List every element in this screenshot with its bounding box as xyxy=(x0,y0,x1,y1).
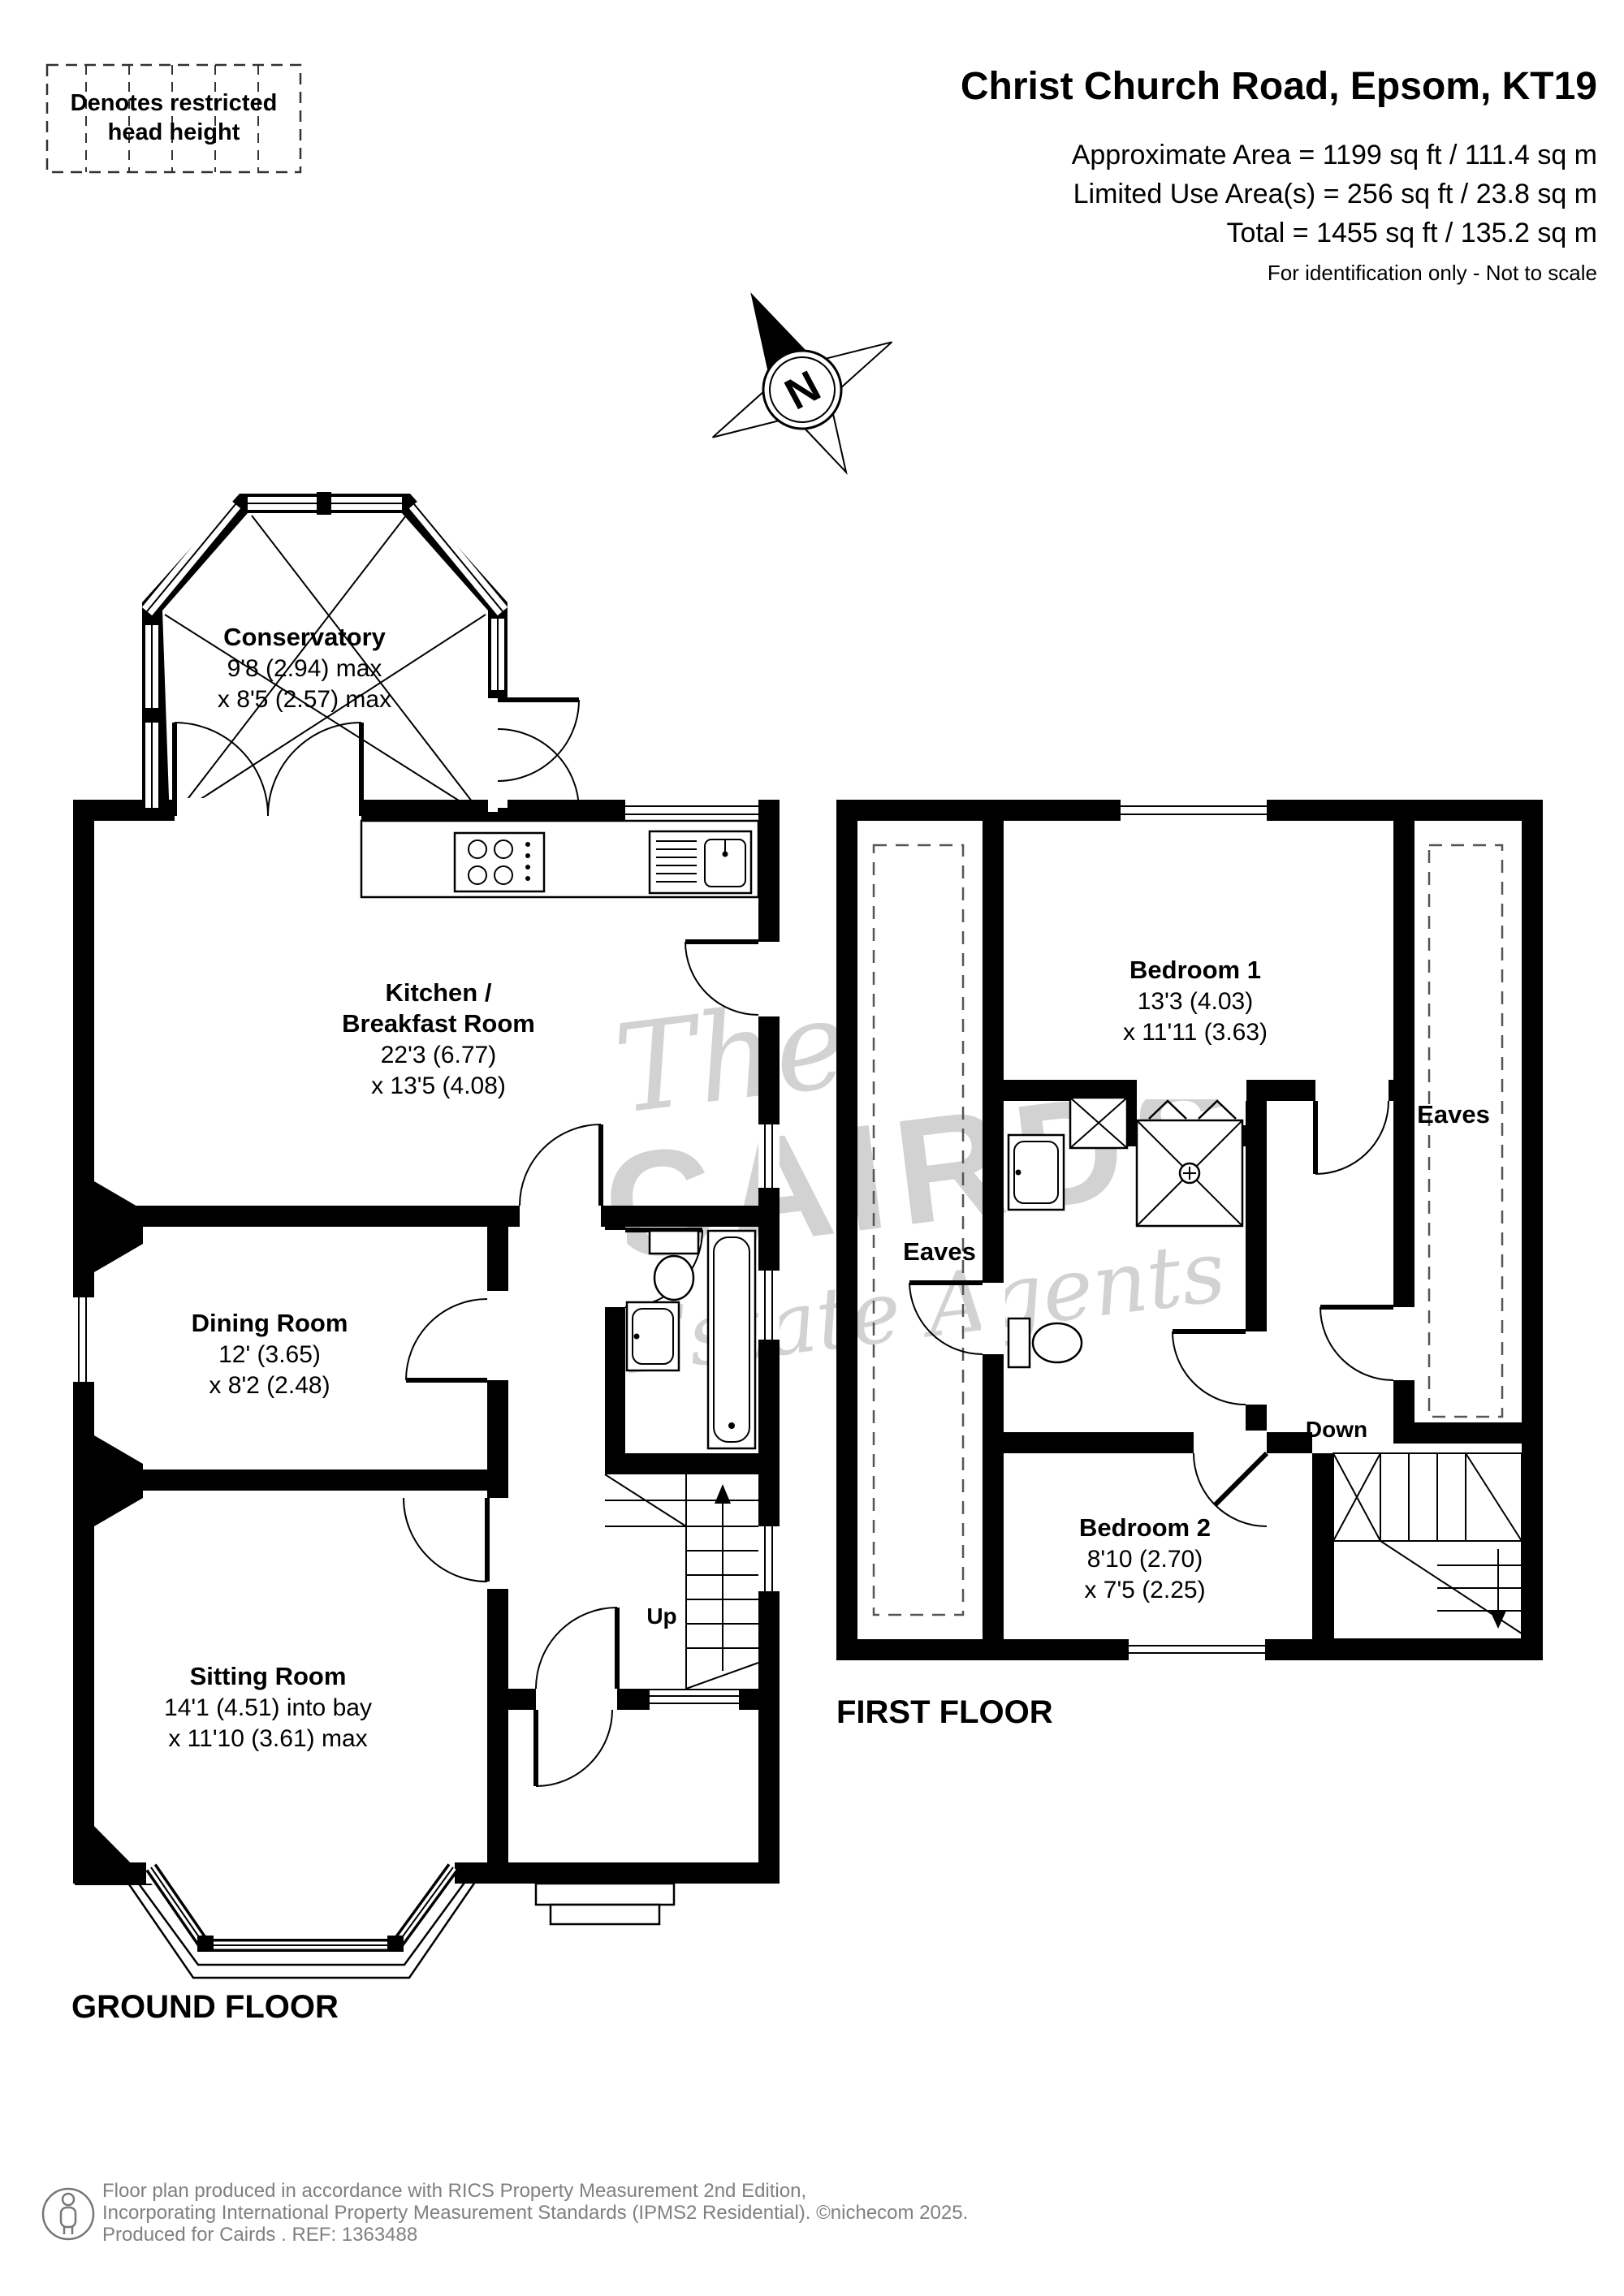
toilet-icon xyxy=(1009,1318,1082,1367)
footer: Floor plan produced in accordance with R… xyxy=(43,2180,968,2246)
person-icon xyxy=(43,2189,93,2239)
sink-icon xyxy=(650,831,751,893)
room-dim2: x 11'10 (3.61) max xyxy=(168,1725,367,1752)
bedroom1-label: Bedroom 1 13'3 (4.03) x 11'11 (3.63) xyxy=(1123,956,1268,1046)
stairs-up-label: Up xyxy=(646,1603,676,1629)
scale-disclaimer: For identification only - Not to scale xyxy=(1268,261,1597,285)
eaves-right-label: Eaves xyxy=(1417,1100,1490,1129)
entrance-step-1 xyxy=(536,1884,674,1905)
floorplan-canvas: Denotes restricted head height Christ Ch… xyxy=(0,0,1624,2296)
vanity-icon xyxy=(1070,1098,1127,1148)
room-name: Bedroom 2 xyxy=(1079,1513,1211,1542)
room-dim1: 12' (3.65) xyxy=(218,1341,321,1368)
toilet-icon xyxy=(650,1231,698,1300)
kitchen-window-right xyxy=(758,1124,780,1188)
room-dim1: 8'10 (2.70) xyxy=(1087,1546,1203,1573)
legend-restricted-head-height: Denotes restricted head height xyxy=(47,65,300,172)
bath-icon xyxy=(708,1231,755,1448)
bay-window xyxy=(122,1862,481,1978)
basin-icon xyxy=(1009,1135,1064,1210)
footer-line3: Produced for Cairds . REF: 1363488 xyxy=(102,2224,417,2246)
room-dim1: 9'8 (2.94) max xyxy=(227,655,382,682)
ground-floor-label: GROUND FLOOR xyxy=(71,1989,339,2025)
room-name: Sitting Room xyxy=(190,1662,347,1690)
title-block: Christ Church Road, Epsom, KT19 Approxim… xyxy=(961,65,1597,285)
room-dim2: x 13'5 (4.08) xyxy=(371,1072,506,1099)
first-floor-label: FIRST FLOOR xyxy=(836,1694,1053,1730)
stairs-window-right xyxy=(758,1526,780,1591)
room-dim2: x 7'5 (2.25) xyxy=(1084,1577,1205,1603)
room-name: Dining Room xyxy=(192,1309,348,1337)
legend-line1: Denotes restricted xyxy=(71,90,278,116)
dining-window-left xyxy=(71,1297,94,1382)
room-dim1: 14'1 (4.51) into bay xyxy=(164,1694,372,1721)
shower-icon xyxy=(1137,1120,1242,1226)
compass-icon: N xyxy=(663,248,936,520)
kitchen-counter xyxy=(361,821,758,897)
conservatory-label: Conservatory 9'8 (2.94) max x 8'5 (2.57)… xyxy=(218,623,391,713)
bedroom2-label: Bedroom 2 8'10 (2.70) x 7'5 (2.25) xyxy=(1079,1513,1211,1603)
legend-box xyxy=(47,65,300,172)
room-name2: Breakfast Room xyxy=(342,1009,535,1038)
kitchen-window-top xyxy=(625,800,758,821)
footer-line2: Incorporating International Property Mea… xyxy=(102,2202,968,2224)
room-name1: Kitchen / xyxy=(386,978,492,1007)
legend-line2: head height xyxy=(108,119,240,145)
ff-window-top xyxy=(1121,800,1267,821)
conservatory-exterior-door xyxy=(488,698,579,812)
page-title: Christ Church Road, Epsom, KT19 xyxy=(961,65,1597,108)
room-dim2: x 11'11 (3.63) xyxy=(1123,1019,1268,1046)
entrance-step-2 xyxy=(551,1905,659,1924)
room-dim1: 13'3 (4.03) xyxy=(1138,988,1254,1015)
room-dim2: x 8'5 (2.57) max xyxy=(218,686,391,713)
ff-window-bottom xyxy=(1129,1639,1265,1660)
limited-use-area: Limited Use Area(s) = 256 sq ft / 23.8 s… xyxy=(1073,179,1597,209)
room-name: Bedroom 1 xyxy=(1129,956,1261,984)
footer-line1: Floor plan produced in accordance with R… xyxy=(102,2180,806,2202)
total-area: Total = 1455 sq ft / 135.2 sq m xyxy=(1227,218,1597,248)
room-dim1: 22'3 (6.77) xyxy=(381,1042,497,1068)
eaves-left-label: Eaves xyxy=(903,1237,976,1266)
porch-window-bottom xyxy=(650,1690,739,1710)
room-dim2: x 8'2 (2.48) xyxy=(209,1372,330,1399)
floorplan-page: Denotes restricted head height Christ Ch… xyxy=(0,0,1624,2296)
bathroom-window-right xyxy=(758,1271,780,1340)
basin-icon xyxy=(627,1302,679,1370)
approximate-area: Approximate Area = 1199 sq ft / 111.4 sq… xyxy=(1072,140,1597,170)
sitting-label: Sitting Room 14'1 (4.51) into bay x 11'1… xyxy=(164,1662,372,1752)
stairs-down-label: Down xyxy=(1306,1417,1367,1442)
hob-icon xyxy=(455,833,544,891)
room-name: Conservatory xyxy=(223,623,387,651)
